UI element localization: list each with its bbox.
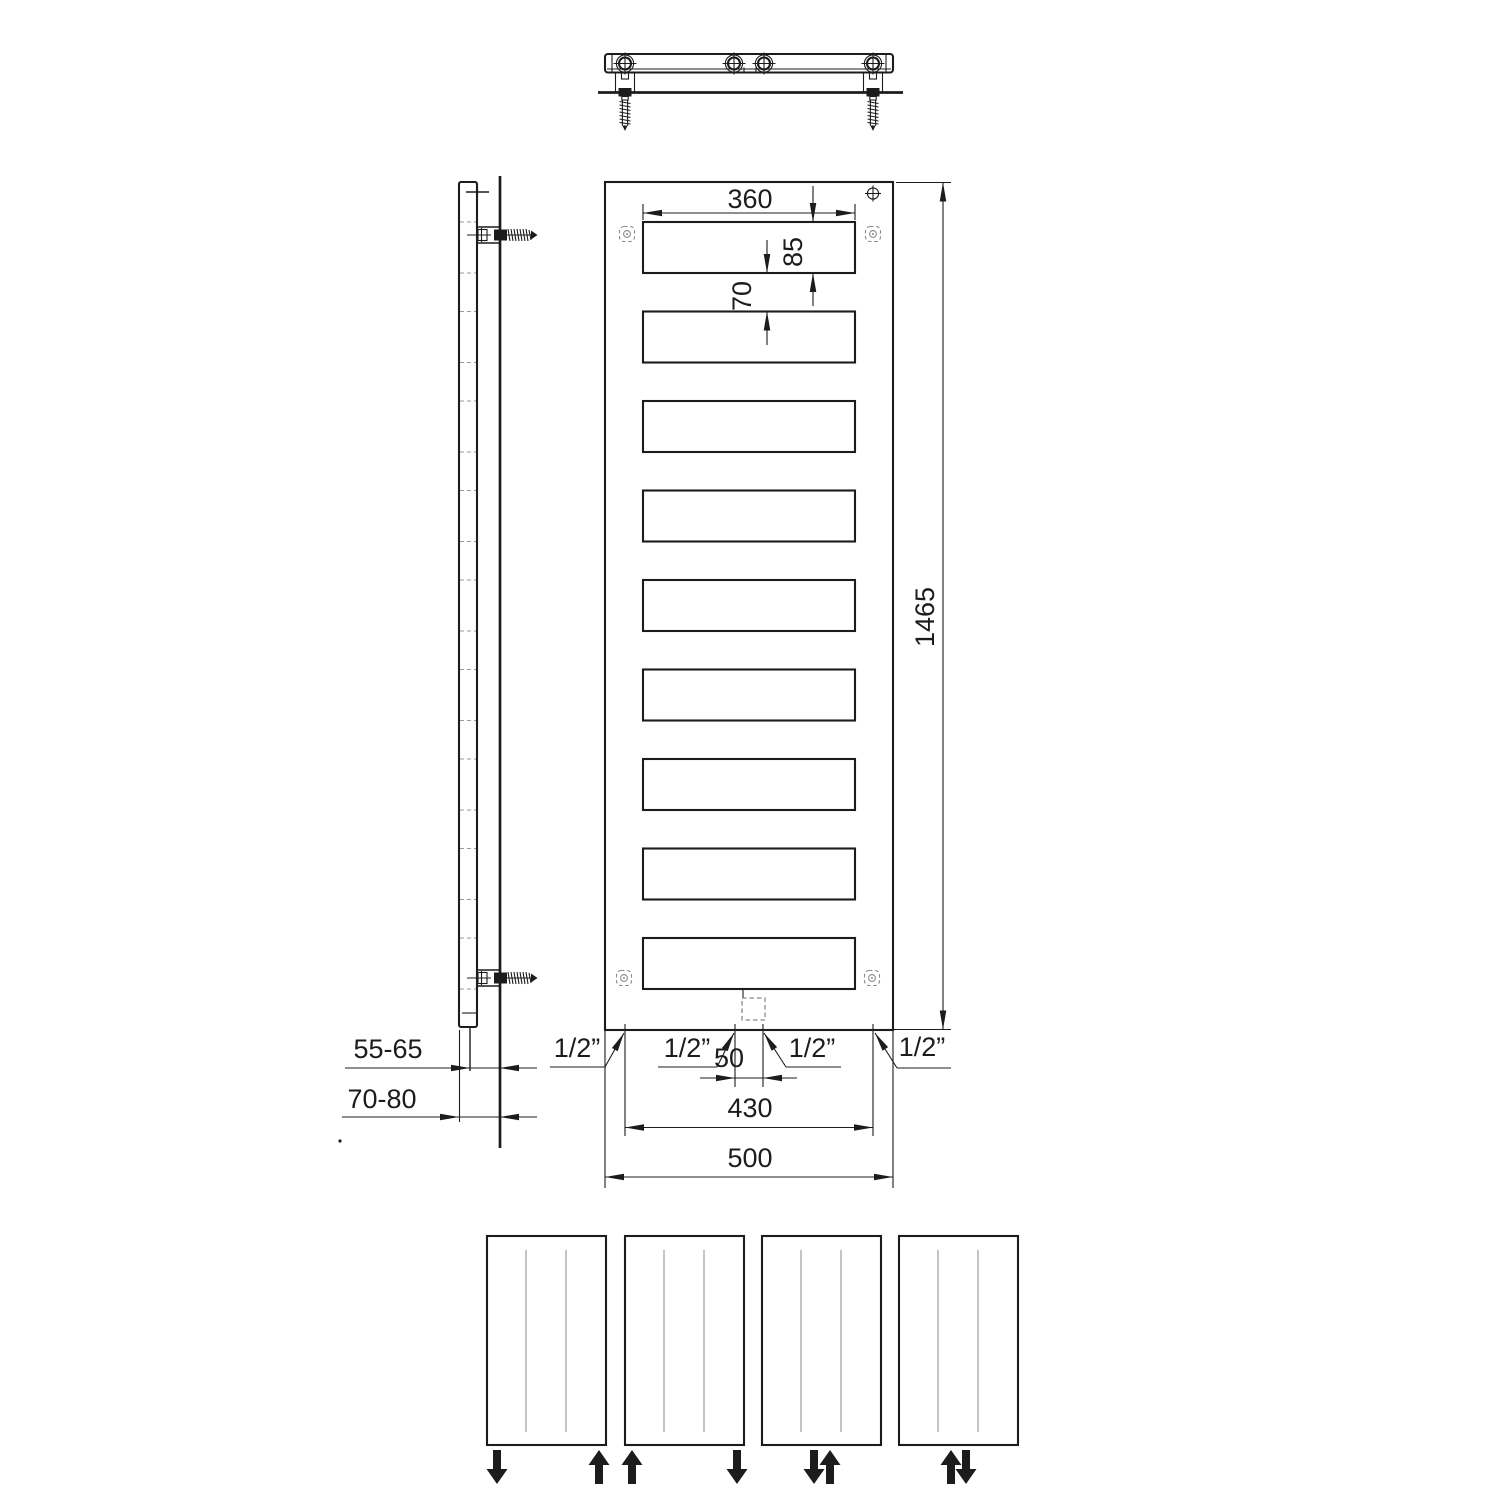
connection-label-center-right: 1/2” — [761, 1031, 841, 1067]
radiator-technical-drawing: 55-65 70-80 — [0, 0, 1500, 1500]
down-arrow-icon — [727, 1450, 748, 1484]
dim-label-50: 50 — [714, 1043, 744, 1073]
dimension-overall-width: 500 — [605, 1143, 893, 1180]
slot-edge-ticks — [460, 222, 476, 989]
fixing-point-icon — [617, 971, 632, 986]
flow-option-3 — [762, 1236, 881, 1484]
top-view — [598, 53, 903, 132]
half-inch-label: 1/2” — [554, 1033, 601, 1063]
hidden-connection-box — [742, 989, 765, 1020]
flow-option-2 — [622, 1236, 748, 1484]
connection-label-far-right: 1/2” — [872, 1031, 951, 1068]
panel-profile — [459, 182, 477, 1027]
wall-anchor-icon — [867, 88, 880, 131]
up-arrow-icon — [820, 1450, 841, 1484]
up-arrow-icon — [622, 1450, 643, 1484]
side-view: 55-65 70-80 — [338, 176, 537, 1148]
dim-label-500: 500 — [727, 1143, 772, 1173]
down-arrow-icon — [487, 1450, 508, 1484]
technical-drawing-canvas: 55-65 70-80 — [0, 0, 1500, 1500]
flow-option-1 — [487, 1236, 610, 1484]
dimension-slot-width: 360 — [643, 184, 855, 220]
slot — [643, 491, 855, 542]
dimension-overall-height: 1465 — [894, 183, 951, 1030]
fixing-point-icon — [866, 227, 881, 242]
slot — [643, 849, 855, 900]
half-inch-label: 1/2” — [664, 1033, 711, 1063]
dimension-outer-connections: 430 — [625, 1093, 873, 1131]
down-arrow-icon — [956, 1450, 977, 1484]
fixing-point-icon — [620, 227, 635, 242]
air-vent-icon — [466, 186, 489, 198]
dim-label-430: 430 — [727, 1093, 772, 1123]
air-bleed-icon — [865, 186, 881, 202]
slot — [643, 222, 855, 273]
flow-options — [487, 1236, 1019, 1484]
screw-icon — [614, 53, 637, 75]
down-arrow-icon — [804, 1450, 825, 1484]
panel-slots — [643, 222, 855, 989]
slot — [643, 312, 855, 363]
dimension-pipe-to-wall: 55-65 — [345, 1034, 537, 1071]
front-view: 360 85 70 1465 1/2” — [550, 182, 951, 1188]
slot — [643, 401, 855, 452]
up-arrow-icon — [941, 1450, 962, 1484]
up-arrow-icon — [589, 1450, 610, 1484]
dimension-face-to-wall: 70-80 — [342, 1084, 537, 1120]
stray-dot — [338, 1139, 341, 1142]
wall-anchor-icon — [494, 972, 538, 984]
connection-label-far-left: 1/2” — [550, 1031, 627, 1067]
slot — [643, 759, 855, 810]
screw-icon — [862, 53, 885, 75]
slot — [643, 670, 855, 721]
wall-anchor-icon — [619, 88, 632, 131]
collector-bar — [605, 54, 893, 73]
slot — [643, 938, 855, 989]
half-inch-label: 1/2” — [789, 1033, 836, 1063]
dim-label-1465: 1465 — [910, 587, 940, 647]
flow-option-4 — [899, 1236, 1018, 1484]
fixing-point-icon — [865, 971, 880, 986]
dim-label-360: 360 — [727, 184, 772, 214]
screw-icon — [723, 53, 746, 75]
dimension-slot-gap: 70 — [727, 240, 770, 345]
slot — [643, 580, 855, 631]
dimension-slot-height: 85 — [778, 186, 816, 306]
dim-label-55-65: 55-65 — [353, 1034, 422, 1064]
dim-label-70: 70 — [727, 281, 757, 311]
dim-label-70-80: 70-80 — [347, 1084, 416, 1114]
wall-anchor-icon — [494, 229, 538, 241]
dim-label-85: 85 — [778, 237, 808, 267]
half-inch-label: 1/2” — [899, 1032, 946, 1062]
